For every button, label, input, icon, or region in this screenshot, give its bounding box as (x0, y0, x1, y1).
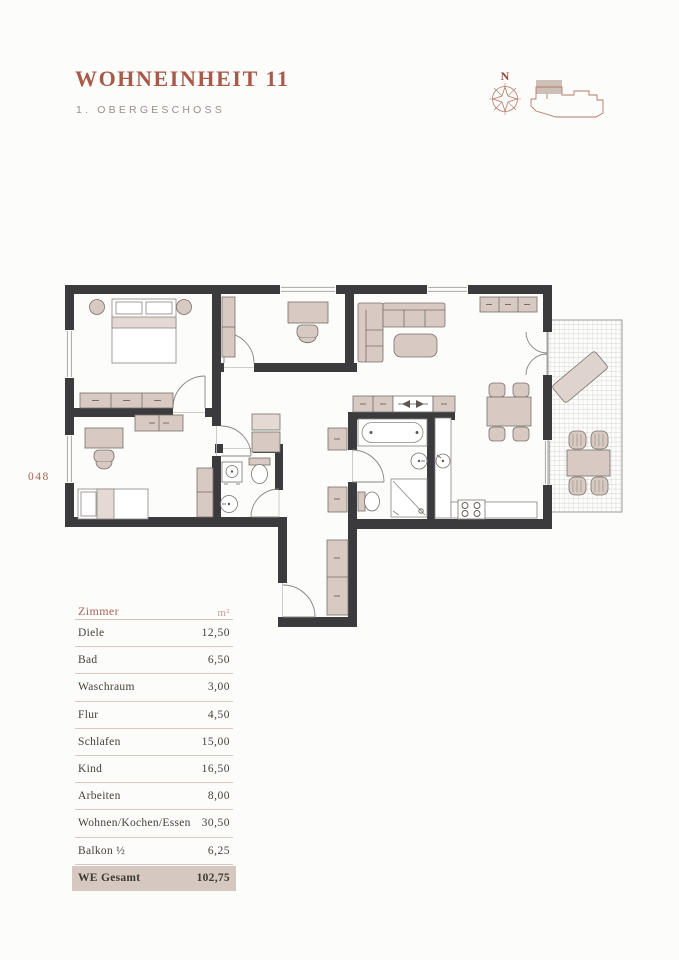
dining-set (487, 383, 531, 441)
room-area: 16,50 (202, 763, 230, 775)
room-name: Waschraum (78, 681, 135, 693)
room-area: 8,00 (208, 790, 230, 802)
balcony-french-doors (526, 332, 547, 375)
room-area: 4,50 (208, 709, 230, 721)
laundry-door (251, 489, 279, 517)
table-row: Kind 16,50 (75, 756, 233, 783)
room-area: 6,50 (208, 654, 230, 666)
column-room: Zimmer (78, 604, 119, 619)
hallway-furniture (252, 414, 348, 615)
table-row: Waschraum 3,00 (75, 674, 233, 701)
room-name: Kind (78, 763, 102, 775)
room-area: 12,50 (202, 627, 230, 639)
room-name: Diele (78, 627, 104, 639)
office-furniture (222, 297, 328, 357)
rooms-table-header: Zimmer m² (75, 596, 233, 620)
room-name: Balkon ½ (78, 845, 125, 857)
table-row: Flur 4,50 (75, 702, 233, 729)
bathroom-fixtures (358, 419, 427, 517)
total-area: 102,75 (197, 872, 230, 884)
table-row: Bad 6,50 (75, 647, 233, 674)
balcony (548, 320, 622, 512)
room-name: Bad (78, 654, 97, 666)
entrance-door (283, 585, 315, 617)
table-row: Wohnen/Kochen/Essen 30,50 (75, 810, 233, 837)
table-row: Balkon ½ 6,25 (75, 838, 233, 865)
room-area: 6,25 (208, 845, 230, 857)
total-label: WE Gesamt (78, 872, 140, 884)
bedroom-furniture (80, 299, 192, 408)
room-name: Schlafen (78, 736, 121, 748)
table-row: Diele 12,50 (75, 620, 233, 647)
room-area: 15,00 (202, 736, 230, 748)
table-row: Arbeiten 8,00 (75, 783, 233, 810)
stove-icon (458, 500, 485, 519)
living-room-furniture (358, 297, 537, 362)
kids-room-furniture (78, 415, 213, 519)
room-name: Arbeiten (78, 790, 121, 802)
room-area: 30,50 (202, 817, 230, 829)
room-name: Flur (78, 709, 98, 721)
floorplan-page: WOHNEINHEIT 11 1. OBERGESCHOSS 048 N (0, 0, 679, 960)
column-area-unit: m² (217, 607, 230, 619)
bedroom-door (173, 376, 205, 408)
table-row: Schlafen 15,00 (75, 729, 233, 756)
laundry-fixtures (221, 458, 271, 513)
room-name: Wohnen/Kochen/Essen (78, 817, 191, 829)
table-total-row: WE Gesamt 102,75 (72, 866, 236, 891)
rooms-table: Zimmer m² Diele 12,50 Bad 6,50 Waschraum… (75, 596, 233, 891)
bath-door (352, 450, 384, 482)
furniture (78, 297, 537, 615)
room-area: 3,00 (208, 681, 230, 693)
kids-room-door (221, 426, 251, 456)
